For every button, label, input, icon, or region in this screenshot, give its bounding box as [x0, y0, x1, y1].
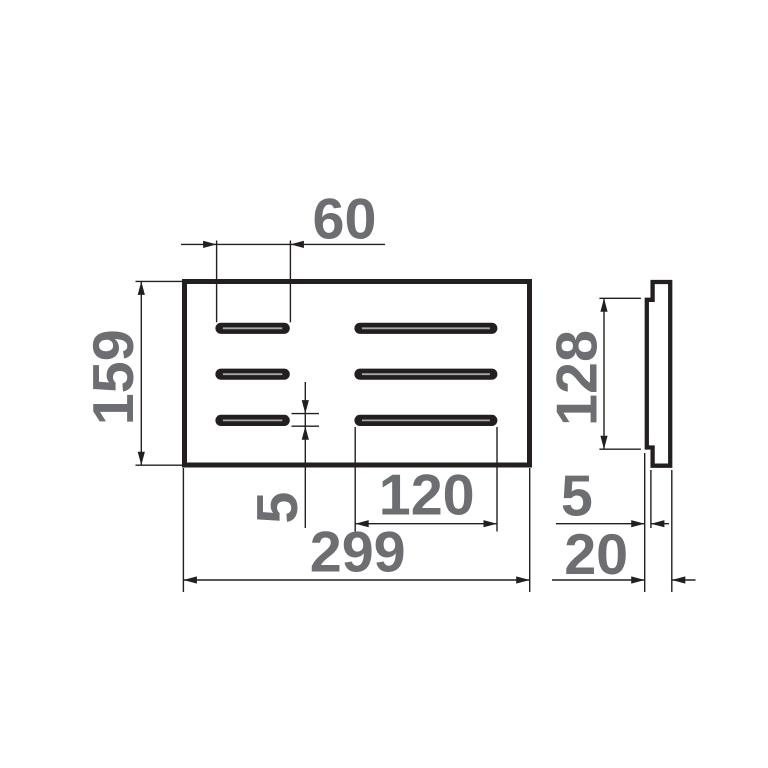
svg-text:159: 159: [82, 329, 146, 425]
svg-text:5: 5: [246, 492, 310, 524]
svg-text:60: 60: [313, 187, 377, 251]
svg-text:20: 20: [564, 523, 628, 587]
svg-text:128: 128: [546, 330, 610, 426]
svg-text:299: 299: [310, 521, 406, 585]
svg-text:120: 120: [379, 464, 475, 528]
svg-text:5: 5: [561, 465, 593, 529]
